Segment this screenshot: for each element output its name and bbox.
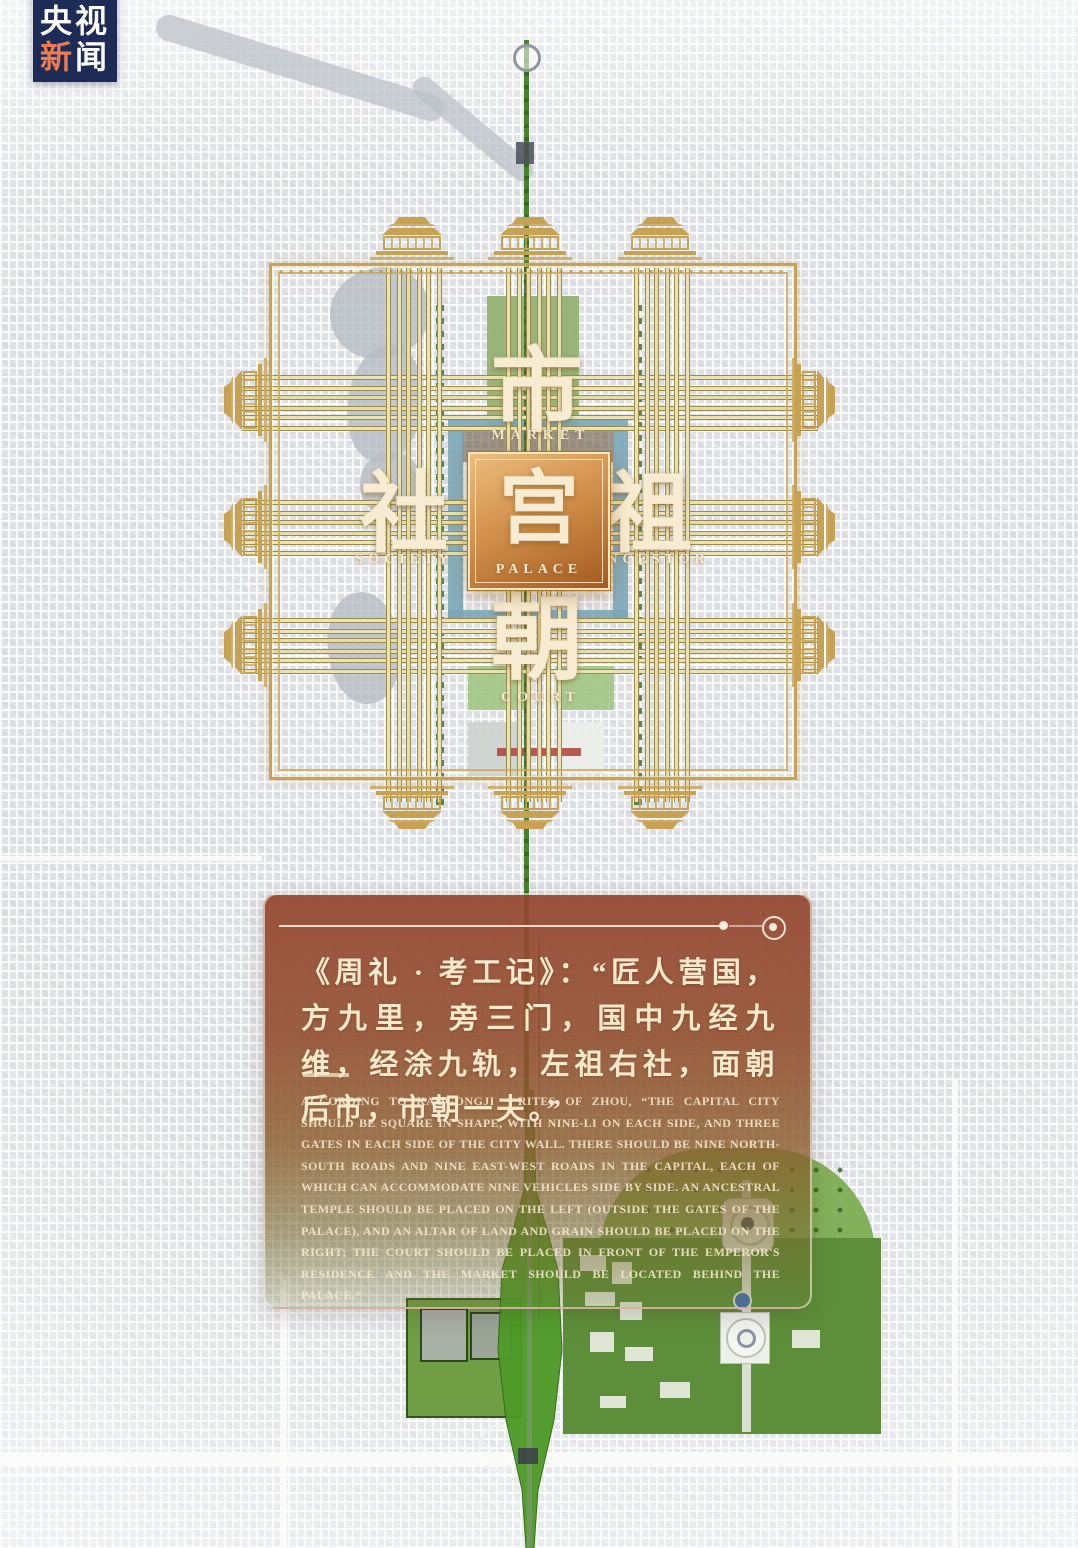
road-line xyxy=(952,1080,958,1548)
north-gate-icon xyxy=(368,216,456,264)
west-gate-icon xyxy=(223,601,271,689)
label-market-en: MARKET xyxy=(446,428,636,444)
park-building xyxy=(590,1332,614,1352)
park-building xyxy=(660,1382,690,1398)
south-gate-icon xyxy=(368,782,456,830)
label-palace-zh: 宫 xyxy=(470,470,608,550)
east-gate-icon xyxy=(788,356,836,444)
axis-north-ring-icon xyxy=(513,44,541,72)
road-line xyxy=(0,856,262,861)
west-gate-icon xyxy=(223,483,271,571)
north-gate-icon xyxy=(616,216,704,264)
label-palace-en: PALACE xyxy=(470,562,608,578)
panel-divider xyxy=(303,1073,349,1077)
circular-mound-core xyxy=(737,1329,756,1348)
east-gate-icon xyxy=(788,483,836,571)
panel-deco-dot xyxy=(719,921,728,930)
label-market-zh: 市 xyxy=(491,346,583,438)
park-building xyxy=(600,1396,626,1408)
axis-bell-tower xyxy=(516,142,534,164)
park-building xyxy=(625,1347,653,1361)
cctv-news-logo: 央视 新闻 xyxy=(33,0,117,82)
poster-canvas: 市 MARKET 社 SOCIETY 祖 ANCESTOR 朝 COURT 宫 … xyxy=(0,0,1078,1548)
west-gate-icon xyxy=(223,356,271,444)
park-building xyxy=(792,1330,820,1348)
logo-rest-char: 闻 xyxy=(75,39,110,75)
panel-deco-ring-core xyxy=(769,923,777,931)
logo-row-2: 新闻 xyxy=(40,40,110,76)
axis-overpass xyxy=(518,1448,538,1464)
north-gate-icon xyxy=(486,216,574,264)
palace-plaque: 宫 PALACE xyxy=(468,452,610,590)
south-gate-icon xyxy=(616,782,704,830)
label-ancestor-zh: 祖 xyxy=(602,472,694,560)
logo-row-1: 央视 xyxy=(40,4,110,40)
road-line xyxy=(281,1280,287,1548)
panel-deco-line xyxy=(279,925,725,927)
south-gate-icon xyxy=(486,782,574,830)
quote-panel: 《周礼 · 考工记》：“匠人营国，方九里，旁三门，国中九经九维，经涂九轨，左祖右… xyxy=(263,893,812,1309)
label-court-en: COURT xyxy=(451,690,631,706)
label-society-zh: 社 xyxy=(358,472,450,560)
east-gate-icon xyxy=(788,601,836,689)
road-line xyxy=(818,856,1078,861)
label-court-zh: 朝 xyxy=(491,594,583,686)
quote-english: ACCORDING TO KAOGONGJI · RITES OF ZHOU, … xyxy=(301,1091,780,1307)
xiannongtan-building xyxy=(420,1308,468,1362)
logo-accent-char: 新 xyxy=(40,39,75,75)
panel-deco-line xyxy=(729,925,762,927)
